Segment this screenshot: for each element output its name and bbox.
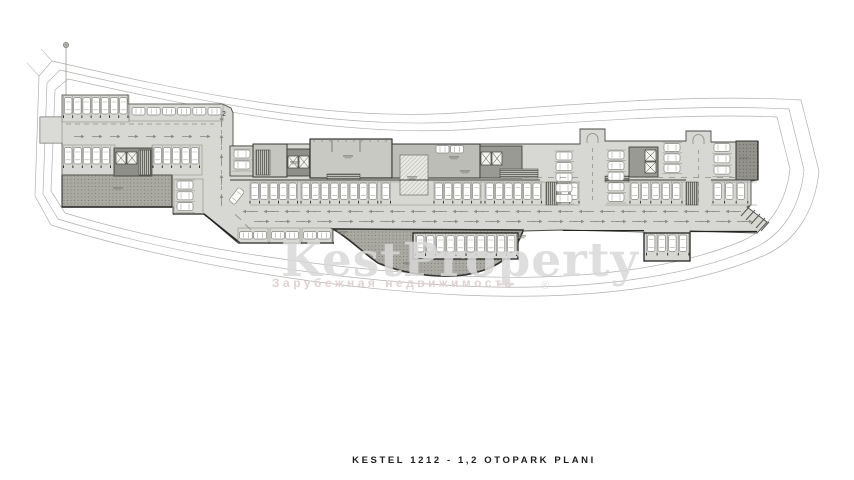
car-icon <box>261 183 268 200</box>
car-icon <box>240 232 253 240</box>
car-icon <box>65 148 72 165</box>
car-icon <box>664 154 680 162</box>
car-icon <box>83 98 90 115</box>
watermark-registered-icon: ® <box>541 280 549 292</box>
elevator-icon <box>299 156 309 168</box>
car-icon <box>608 193 624 201</box>
car-icon <box>74 98 81 115</box>
car-icon <box>312 183 319 200</box>
car-icon <box>331 183 338 200</box>
building-east-end <box>736 141 758 180</box>
car-icon <box>270 183 277 200</box>
car-icon <box>182 148 189 165</box>
car-icon <box>486 183 493 200</box>
car-icon <box>454 183 461 200</box>
car-icon <box>726 183 733 200</box>
stair-row-686 <box>686 182 698 205</box>
car-icon <box>608 172 624 180</box>
car-icon <box>102 148 109 165</box>
car-icon <box>251 183 258 200</box>
entry-ramp-west <box>40 117 62 143</box>
car-icon <box>234 161 250 169</box>
car-icon <box>608 183 624 191</box>
car-icon <box>92 98 99 115</box>
car-icon <box>93 148 100 165</box>
car-icon <box>360 183 367 200</box>
car-icon <box>608 162 624 170</box>
car-icon <box>556 163 572 171</box>
elevator-icon <box>481 152 491 165</box>
tech-room-west <box>62 175 172 207</box>
car-icon <box>658 235 665 252</box>
car-icon <box>608 151 624 159</box>
stair-strip-520 <box>500 169 538 178</box>
car-icon <box>556 184 572 192</box>
car-icon <box>737 183 744 200</box>
car-icon <box>321 183 328 200</box>
elevator-icon <box>127 152 137 164</box>
car-icon <box>463 183 470 200</box>
building-central <box>310 139 392 178</box>
car-icon <box>177 203 193 211</box>
car-icon <box>648 235 655 252</box>
elevator-icon <box>492 152 502 165</box>
car-icon <box>495 183 502 200</box>
car-icon <box>714 144 730 152</box>
car-icon <box>177 181 193 189</box>
car-icon <box>382 183 389 200</box>
car-icon <box>505 183 512 200</box>
car-icon <box>280 183 287 200</box>
car-icon <box>289 183 296 200</box>
car-icon <box>340 183 347 200</box>
stair-b1 <box>256 150 270 175</box>
car-icon <box>641 183 648 200</box>
car-icon <box>435 183 442 200</box>
floor-plan-canvas: 2 KestProperty Зарубежная недвижимость ®… <box>0 0 854 480</box>
car-icon <box>162 108 175 116</box>
car-icon <box>714 183 721 200</box>
car-icon <box>254 232 267 240</box>
car-icon <box>533 183 540 200</box>
car-icon <box>132 108 145 116</box>
car-icon <box>664 144 680 152</box>
car-icon <box>714 155 730 163</box>
car-icon <box>451 146 464 154</box>
car-icon <box>350 183 357 200</box>
car-icon <box>120 98 127 115</box>
car-icon <box>436 146 449 154</box>
car-icon <box>101 98 108 115</box>
car-icon <box>524 183 531 200</box>
car-icon <box>556 152 572 160</box>
car-icon <box>234 150 250 158</box>
car-icon <box>178 108 191 116</box>
car-icon <box>473 183 480 200</box>
boundary-corner-extension <box>27 49 52 76</box>
car-icon <box>65 98 72 115</box>
car-icon <box>74 148 81 165</box>
elevator-icon <box>645 162 656 173</box>
car-icon <box>111 98 118 115</box>
car-icon <box>177 192 193 200</box>
car-icon <box>514 183 521 200</box>
plan-title: KESTEL 1212 - 1,2 OTOPARK PLANI <box>334 455 614 466</box>
car-icon <box>631 183 638 200</box>
car-icon <box>679 235 686 252</box>
car-icon <box>154 148 161 165</box>
stair-west <box>139 150 151 175</box>
car-icon <box>669 235 676 252</box>
car-icon <box>193 108 206 116</box>
elevator-icon <box>645 150 656 161</box>
elevator-icon <box>116 152 126 164</box>
level-label: 2 <box>222 111 226 118</box>
car-icon <box>302 183 309 200</box>
car-icon <box>673 183 680 200</box>
car-icon <box>664 164 680 172</box>
stair-strip-central <box>327 174 360 180</box>
car-icon <box>369 183 376 200</box>
car-icon <box>662 183 669 200</box>
car-icon <box>147 108 160 116</box>
car-icon <box>444 183 451 200</box>
watermark-subtitle: Зарубежная недвижимость <box>272 276 532 290</box>
survey-pin <box>63 42 68 96</box>
car-icon <box>208 108 221 116</box>
car-icon <box>83 148 90 165</box>
hatched-court <box>400 155 428 195</box>
car-icon <box>191 148 198 165</box>
car-icon <box>652 183 659 200</box>
car-icon <box>556 194 572 202</box>
car-icon <box>163 148 170 165</box>
car-icon <box>714 166 730 174</box>
car-icon <box>173 148 180 165</box>
